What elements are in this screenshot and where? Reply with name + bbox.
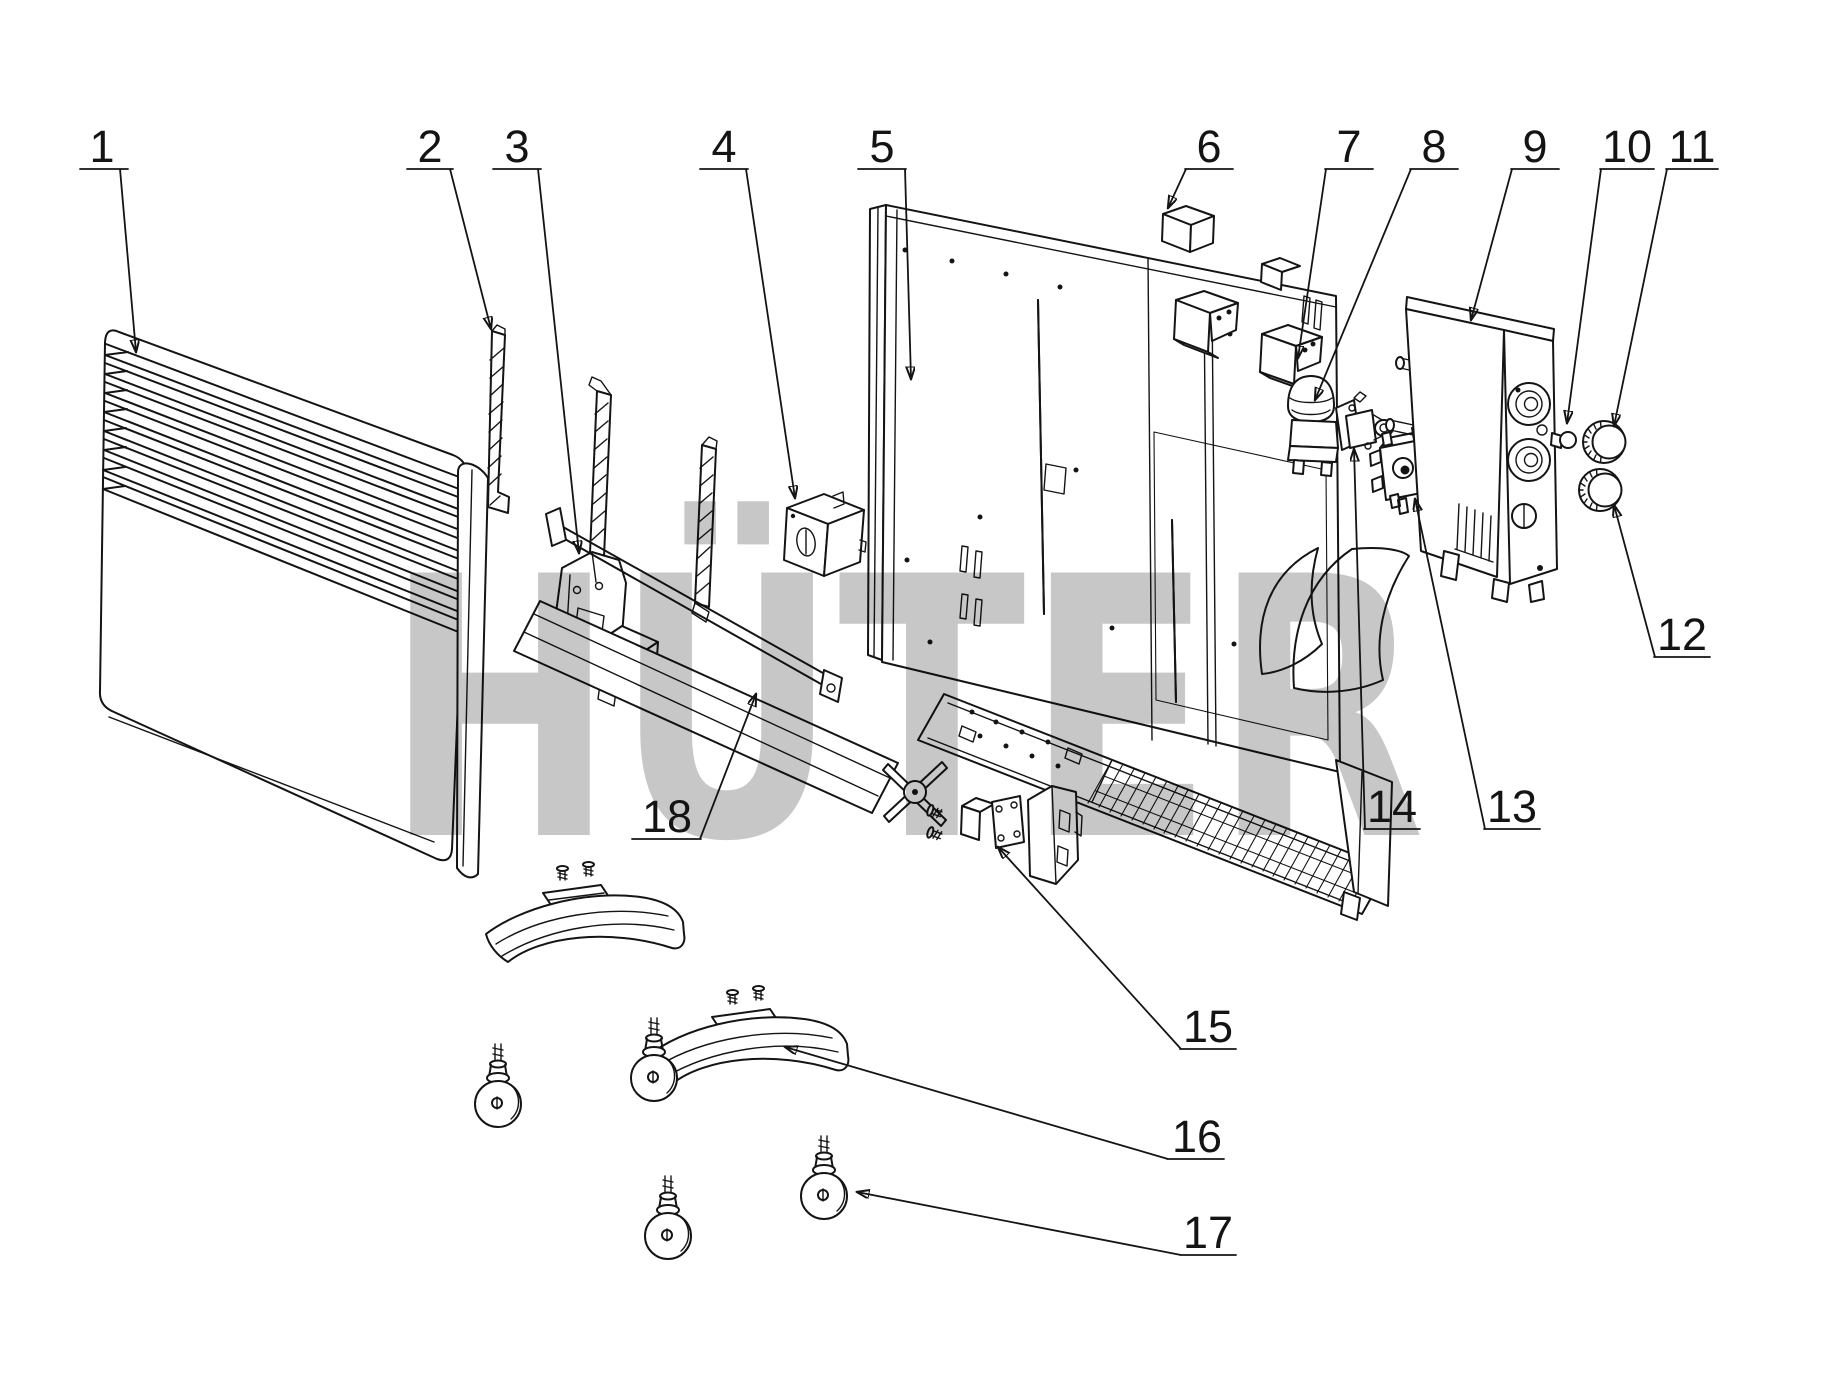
part-17-caster [475,1044,521,1127]
part-label-2: 2 [417,121,442,172]
part-12-knob [1579,469,1622,511]
part-17-caster [801,1136,847,1219]
brand-watermark: HÜTER [385,498,1425,921]
part-label-9: 9 [1522,121,1547,172]
part-10-indicator-lamp [1551,432,1576,448]
part-8-thermostat [1288,376,1338,476]
leader-11 [1614,169,1718,426]
exploded-parts-diagram: HÜTER 1 2 3 4 5 6 7 8 9 10 11 12 [0,0,1821,1381]
part-label-5: 5 [869,121,894,172]
leader-9 [1471,169,1559,320]
part-17-caster [645,1176,691,1259]
brand-watermark-group: HÜTER [385,498,1425,921]
part-label-16: 16 [1172,1111,1222,1162]
exploded-parts-diagram-page: HÜTER 1 2 3 4 5 6 7 8 9 10 11 12 [0,0,1821,1381]
part-label-8: 8 [1421,121,1446,172]
part-2-mounting-strip [488,325,509,513]
part-label-4: 4 [711,121,736,172]
part-label-10: 10 [1602,121,1652,172]
part-label-15: 15 [1183,1001,1233,1052]
part-label-3: 3 [504,121,529,172]
part-11-knob [1583,421,1626,463]
part-label-13: 13 [1487,781,1537,832]
leader-1 [80,169,136,352]
part-label-17: 17 [1183,1207,1233,1258]
part-label-12: 12 [1657,609,1707,660]
leader-17 [857,1192,1236,1255]
leader-2 [407,169,491,329]
part-label-1: 1 [89,121,114,172]
part-label-11: 11 [1669,121,1716,172]
part-label-18: 18 [642,791,692,842]
part-label-7: 7 [1336,121,1361,172]
part-label-14: 14 [1367,781,1417,832]
part-label-6: 6 [1196,121,1221,172]
leader-6 [1168,169,1233,208]
leader-16 [785,1047,1224,1159]
part-16-leg-rear [631,986,848,1101]
